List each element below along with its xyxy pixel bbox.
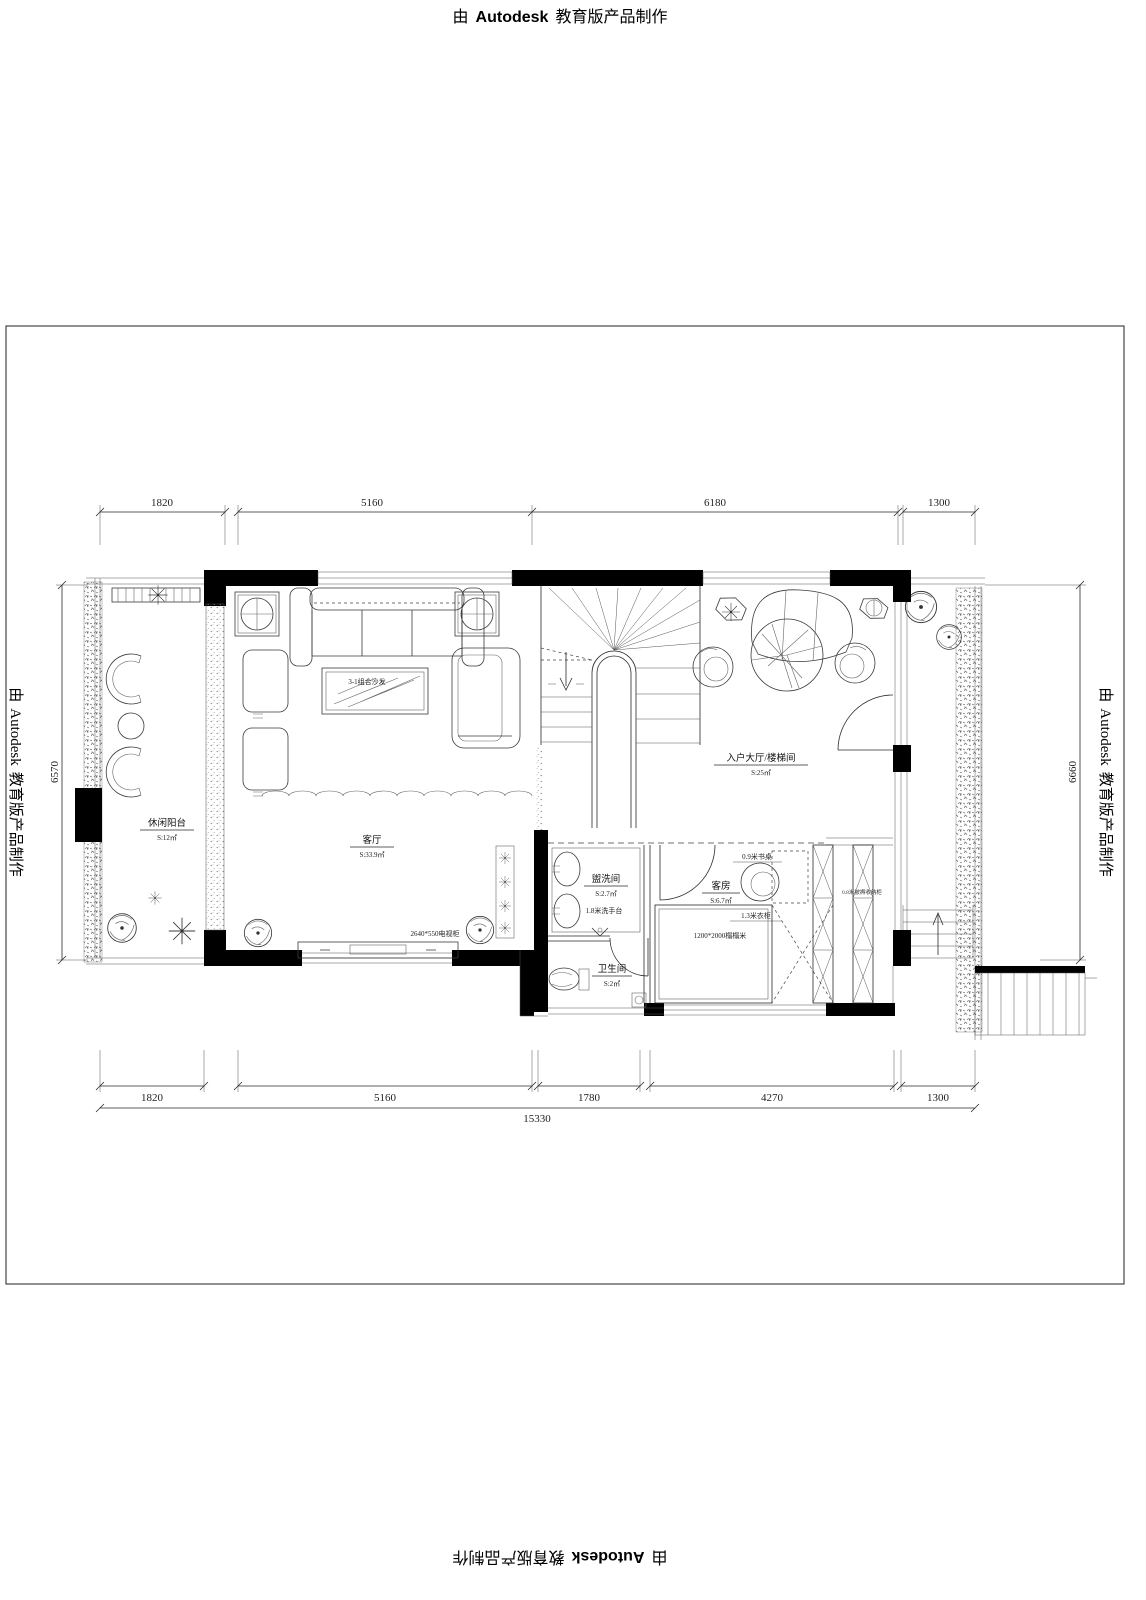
room-area-balcony: S:12㎡ bbox=[157, 834, 177, 842]
edu-stamp-top: 由Autodesk教育版产品制作 bbox=[453, 8, 668, 26]
plant-icon bbox=[499, 852, 511, 864]
room-label-living: 客厅 bbox=[362, 834, 382, 846]
room-entry-hall: 入户大厅/楼梯间 S:25㎡ bbox=[548, 590, 893, 843]
room-washroom: 盥洗间 S:2.7㎡ 1.8米洗手台 bbox=[548, 845, 650, 1003]
room-label-hall: 入户大厅/楼梯间 bbox=[726, 752, 795, 764]
plant-icon bbox=[499, 876, 511, 888]
room-label-bathroom: 卫生间 bbox=[598, 963, 627, 975]
tatami-label: 1200*2000榻榻米 bbox=[694, 931, 747, 940]
tv-cabinet-label: 2640*550电视柜 bbox=[411, 929, 460, 938]
structural-walls bbox=[75, 570, 911, 1016]
room-area-living: S:33.9㎡ bbox=[359, 851, 384, 859]
dim-bottom-1: 1820 bbox=[141, 1092, 164, 1104]
entry-door-swing bbox=[838, 695, 893, 750]
tree-icon bbox=[108, 914, 137, 943]
room-area-washroom: S:2.7㎡ bbox=[595, 890, 617, 898]
dimension-right: 6660 bbox=[985, 581, 1086, 964]
washroom-counter-note: 1.8米洗手台 bbox=[586, 906, 623, 915]
stamp-text-left: 由Autodesk教育版产品制作 bbox=[7, 687, 24, 877]
dimension-chain-top: 1820 5160 6180 1300 bbox=[96, 497, 979, 545]
stamp-text-top: 由Autodesk教育版产品制作 bbox=[453, 8, 668, 26]
entry-porch-stairs bbox=[903, 905, 1097, 1035]
dim-total: 15330 bbox=[523, 1113, 551, 1125]
room-label-guest: 客房 bbox=[711, 880, 730, 892]
edu-stamp-left: 由Autodesk教育版产品制作 bbox=[7, 687, 24, 877]
room-area-hall: S:25㎡ bbox=[751, 769, 771, 777]
room-area-bathroom: S:2㎡ bbox=[604, 980, 620, 988]
dim-top-3: 6180 bbox=[704, 497, 727, 509]
desk-label: 0.9米书桌 bbox=[742, 852, 772, 861]
tree-icon bbox=[244, 919, 271, 946]
cad-plot-page: 由Autodesk教育版产品制作 由Autodesk教育版产品制作 由Autod… bbox=[0, 0, 1146, 1600]
dim-bottom-4: 4270 bbox=[761, 1092, 784, 1104]
storage-label: 0.8米被褥收纳柜 bbox=[842, 888, 882, 896]
edu-stamp-right: 由Autodesk教育版产品制作 bbox=[1097, 687, 1114, 877]
windows bbox=[302, 572, 907, 1015]
room-label-washroom: 盥洗间 bbox=[592, 873, 621, 885]
dim-top-1: 1820 bbox=[151, 497, 174, 509]
staircase bbox=[541, 586, 700, 828]
stamp-text-bottom: 由Autodesk教育版产品制作 bbox=[453, 1548, 668, 1566]
room-balcony: 休闲阳台 S:12㎡ bbox=[106, 585, 200, 944]
room-guest: 0.9米书桌 客房 S:6.7㎡ 1.3米衣柜 1200*2000榻榻米 0.8… bbox=[655, 845, 893, 1003]
dim-top-4: 1300 bbox=[928, 497, 951, 509]
tree-icon bbox=[466, 916, 493, 943]
plant-icon bbox=[499, 922, 511, 934]
plant-icon bbox=[148, 891, 161, 904]
dimension-left: 6570 bbox=[49, 581, 88, 964]
wardrobe-label: 1.3米衣柜 bbox=[741, 911, 771, 920]
plant-icon bbox=[169, 918, 195, 944]
dim-bottom-5: 1300 bbox=[927, 1092, 950, 1104]
room-area-guest: S:6.7㎡ bbox=[710, 897, 732, 905]
dim-top-2: 5160 bbox=[361, 497, 384, 509]
plant-icon bbox=[499, 900, 511, 912]
floor-plan-canvas: 由Autodesk教育版产品制作 由Autodesk教育版产品制作 由Autod… bbox=[0, 0, 1146, 1600]
guest-door-swing bbox=[660, 845, 715, 900]
edu-stamp-bottom: 由Autodesk教育版产品制作 bbox=[453, 1548, 668, 1566]
dimension-chain-bottom: 1820 5160 1780 4270 1300 15330 bbox=[96, 1050, 979, 1125]
room-living: 3-1组合沙发 客厅 S:33.9㎡ 2640*550电视柜 bbox=[235, 588, 532, 958]
dim-left: 6570 bbox=[49, 761, 61, 784]
dim-bottom-2: 5160 bbox=[374, 1092, 397, 1104]
stamp-text-right: 由Autodesk教育版产品制作 bbox=[1097, 687, 1114, 877]
dim-right: 6660 bbox=[1067, 761, 1079, 784]
dim-bottom-3: 1780 bbox=[578, 1092, 601, 1104]
room-label-balcony: 休闲阳台 bbox=[148, 817, 186, 829]
